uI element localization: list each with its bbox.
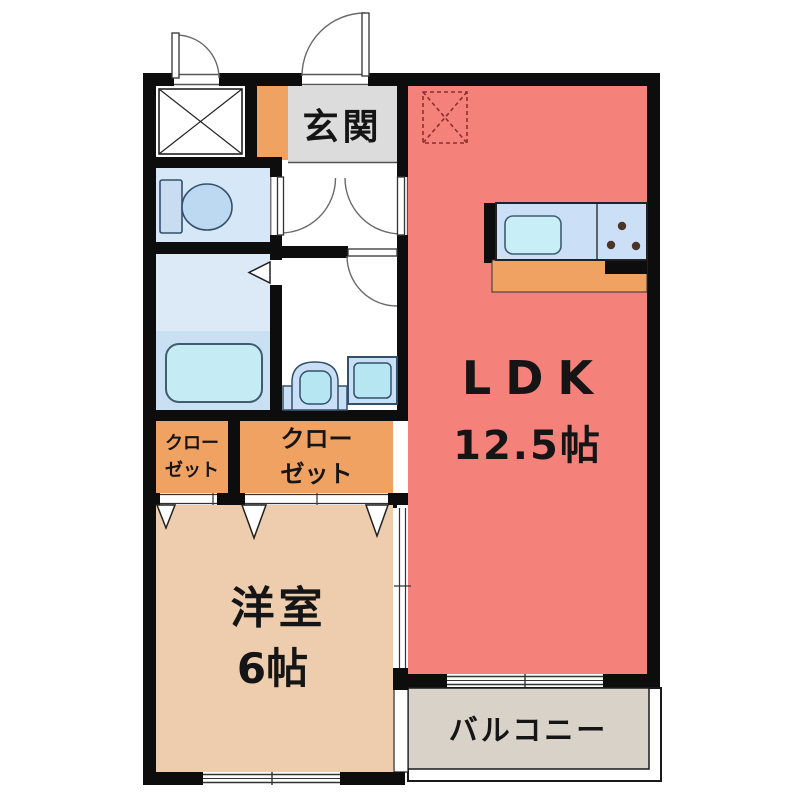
western-room-size-label: 6帖 [156, 640, 389, 690]
hall-ldk-door-leaf [398, 177, 405, 235]
western-room-name-label: 洋室 [162, 578, 395, 630]
closet-small-label: クローゼット [156, 421, 228, 493]
bath-floor-upper [156, 254, 270, 331]
toilet-bowl [182, 184, 232, 230]
wall-segment [245, 86, 257, 157]
ldk-name-label: LDK [408, 352, 647, 404]
toilet-door-leaf [278, 177, 284, 235]
closet-small-label-line2: ゼット [165, 460, 219, 481]
wall-segment [228, 421, 240, 493]
wall-segment [143, 410, 408, 421]
stove-burner-icon [618, 222, 626, 230]
wall-segment [393, 668, 408, 690]
wall-segment [397, 86, 408, 177]
door-arc [176, 35, 219, 78]
wall-segment [143, 73, 156, 785]
wall-segment [484, 203, 496, 263]
wall-segment [143, 157, 282, 168]
wall-segment [603, 674, 660, 687]
floor-plan: 玄関 LDK 12.5帖 洋室 6帖 クローゼット クローゼット バルコニー [0, 0, 800, 800]
wall-segment [217, 493, 245, 505]
wall-segment [143, 242, 282, 254]
entrance-door-leaf [362, 13, 369, 76]
bath-door-opening [270, 260, 282, 285]
closet-large-label: クローゼット [240, 421, 393, 493]
wall-segment [397, 235, 408, 410]
washroom-door-leaf [348, 249, 397, 256]
stove-burner-icon [632, 242, 640, 250]
balcony-label: バルコニー [408, 688, 649, 768]
entrance-label: 玄関 [288, 90, 397, 158]
wall-segment [143, 73, 660, 86]
closet-small-label-line1: クロー [165, 433, 219, 454]
floor-plan-drawing [0, 0, 800, 800]
kitchen-sink [505, 216, 561, 254]
wall-segment [270, 254, 282, 260]
wall-segment [270, 285, 282, 410]
stove-burner-icon [607, 241, 615, 249]
wall-segment [647, 73, 660, 687]
storage-door-leaf [172, 33, 179, 78]
toilet-tank [160, 180, 182, 233]
wall-segment [143, 493, 160, 505]
ldk-size-label: 12.5帖 [408, 418, 647, 466]
washbasin-bowl [300, 371, 331, 404]
hallway-floor [282, 163, 397, 248]
closet-large-label-line2: ゼット [281, 460, 353, 488]
balcony-divider-wall [394, 688, 408, 772]
washing-machine-inner [354, 363, 391, 398]
entrance-step-floor [255, 86, 288, 160]
closet-large-label-line1: クロー [281, 425, 353, 453]
wall-segment [270, 157, 282, 177]
door-arc [302, 13, 365, 76]
bathtub [166, 344, 262, 402]
